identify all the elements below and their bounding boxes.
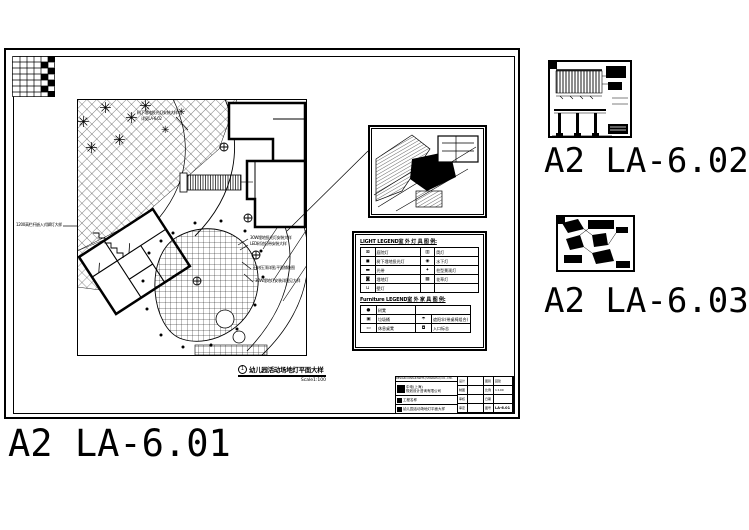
title-block: DESIGN CONSULTANTS (SHANGHAI) CO., LTD. … [395,376,514,414]
legend-symbol: ▥ [420,248,435,257]
light-legend-table: ⊠ 庭院灯 ▥ 筒灯 ◼ 树下埋地投光灯 ◉ 水下灯 ▬ 光带 ✦ 柱型景观灯 [360,247,479,293]
field-label: 比例 [484,386,494,395]
field-label: 图号 [484,404,494,413]
legend-symbol: ◉ [420,257,435,266]
table-row: ◼ 树下埋地投光灯 ◉ 水下灯 [361,257,479,266]
annotation-rail-footlight: 1200高栏杆嵌入式脚灯大样 [16,223,62,227]
legend-label: 水下灯 [435,257,479,266]
field-label: 审核 [458,395,468,404]
annotation-buried-light: 30W埋地灯安装详图见大样 [255,279,300,283]
annotation-buried-floodlight: 30W埋地投光灯安装大样 [250,236,291,240]
legend-symbol [420,284,435,293]
field-label: 设计 [458,377,468,386]
keyplan-graphic [372,129,484,214]
detail-number-bubble: 1 [238,365,247,374]
field-label: 制图 [458,386,468,395]
legend-label: 壁灯 [375,284,420,293]
svg-text:✳: ✳ [85,139,98,157]
field-label: 日期 [484,395,494,404]
project-icon [397,398,402,403]
legend-symbol: ▩ [420,275,435,284]
legend-symbol: ▣ [361,315,377,324]
legend-label: 花草灯 [435,275,479,284]
svg-text:✳: ✳ [125,109,138,127]
site-plan-drawing: ✳✳✳ ✳✳✳ ✳✳ [77,99,307,356]
svg-text:✳: ✳ [161,125,169,136]
annotation-tree-light: 树下埋地投光灯安装大样 [137,111,178,115]
legend-label: 筒灯 [435,248,479,257]
legend-label: 光带 [375,266,420,275]
legend-label: 垃圾桶 [377,315,416,324]
svg-text:✳: ✳ [77,113,90,131]
drawing-icon [397,407,402,412]
legend-label: 树凳 [377,306,416,315]
site-plan-graphic: ✳✳✳ ✳✳✳ ✳✳ [77,99,307,356]
legend-label: 遮阳伞(带桌椅组合) [432,315,471,324]
legend-box: LIGHT LEGEND室 外 灯 具 图 例: ⊠ 庭院灯 ▥ 筒灯 ◼ 树下… [352,231,487,351]
drawing-title-row: 幼儿园活动场地灯平面大样 [396,405,457,413]
table-row: ▣ 垃圾桶 ☂ 遮阳伞(带桌椅组合) [361,315,471,324]
title-block-grid: 设计 图别 园建 制图 比例 1:100 审核 日期 审定 图号 LA-6.01 [458,377,513,413]
plan-title: 幼儿园活动场地灯平面大样 [249,364,323,374]
sheet-label-la-6-02: A2 LA-6.02 [544,143,749,180]
annotation-see-sheet: 详见LA-6.02 [141,117,162,121]
field-value [494,395,513,404]
revision-grid-graphic [12,56,62,97]
field-label: 图别 [484,377,494,386]
legend-label: 柱型景观灯 [435,266,479,275]
field-signature [468,386,484,395]
cad-layout-canvas: ✳✳✳ ✳✳✳ ✳✳ [0,0,749,530]
field-signature [468,377,484,386]
plan-scale: Scale1:100 [238,378,326,383]
legend-symbol: ◙ [361,275,376,284]
sheet-label-la-6-01: A2 LA-6.01 [8,424,231,465]
field-value: 1:100 [494,386,513,395]
legend-symbol: ⊠ [361,248,376,257]
sheet-label-la-6-03: A2 LA-6.03 [544,283,749,320]
keyplan-inset [368,125,487,218]
legend-symbol: ▭ [361,324,377,333]
company-row: 中电(上海) 规划设计咨询有限公司 [396,382,457,396]
field-label: 审定 [458,404,468,413]
legend-label: 埋地灯 [375,275,420,284]
annotation-led-strip: LED树池灯带安装大样 [250,242,287,246]
table-row: ▬ 光带 ✦ 柱型景观灯 [361,266,479,275]
legend-symbol: ▬ [361,266,376,275]
thumbnail-corner-mark [558,217,565,224]
legend-symbol: ◼ [361,257,376,266]
table-row: ◙ 埋地灯 ▩ 花草灯 [361,275,479,284]
thumbnail-sheet-la-6-02 [548,60,632,138]
table-row: ⊔ 壁灯 [361,284,479,293]
drawing-title: 幼儿园活动场地灯平面大样 [403,407,445,411]
annotation-stone-coping: 石材压顶详图,平面铺装图 [253,266,295,270]
keyplan-inner-border [371,128,484,215]
pergola-detail-graphic [550,62,630,136]
thumbnail-sheet-la-6-03 [556,215,635,272]
light-legend-title: LIGHT LEGEND室 外 灯 具 图 例: [360,238,479,245]
project-label: 工程名称 [403,398,417,402]
legend-label: 树下埋地投光灯 [375,257,420,266]
legend-inner-border: LIGHT LEGEND室 外 灯 具 图 例: ⊠ 庭院灯 ▥ 筒灯 ◼ 树下… [355,234,484,348]
table-row: ▭ 休息桌凳 ◘ 入口标志 [361,324,471,333]
project-row: 工程名称 [396,396,457,405]
company-logo [397,385,405,393]
legend-label: 休息桌凳 [377,324,416,333]
table-row: ⊠ 庭院灯 ▥ 筒灯 [361,248,479,257]
legend-label [435,284,479,293]
table-row: ● 树凳 [361,306,471,315]
legend-symbol: ◘ [416,324,432,333]
legend-symbol: ● [361,306,377,315]
thumbnail-corner-mark [550,62,557,69]
details-collage-graphic [558,217,633,270]
furniture-legend-table: ● 树凳 ▣ 垃圾桶 ☂ 遮阳伞(带桌椅组合) ▭ 休息桌凳 ◘ 入口标志 [360,305,471,333]
company-name-cn-2: 规划设计咨询有限公司 [406,389,441,393]
plan-caption: 1 幼儿园活动场地灯平面大样 Scale1:100 [238,364,326,383]
legend-label [416,306,471,315]
sheet-number-value: LA-6.01 [494,404,513,413]
svg-text:✳: ✳ [177,107,185,118]
revision-table [12,56,62,97]
legend-symbol: ⊔ [361,284,376,293]
legend-symbol: ✦ [420,266,435,275]
svg-text:✳: ✳ [113,131,126,149]
field-signature [468,395,484,404]
field-signature [468,404,484,413]
title-block-left: DESIGN CONSULTANTS (SHANGHAI) CO., LTD. … [396,377,458,413]
field-value: 园建 [494,377,513,386]
svg-text:✳: ✳ [99,99,112,117]
legend-label: 庭院灯 [375,248,420,257]
legend-symbol: ☂ [416,315,432,324]
legend-label: 入口标志 [432,324,471,333]
furniture-legend-title: Furniture LEGEND室 外 家 具 图 例: [360,296,479,303]
